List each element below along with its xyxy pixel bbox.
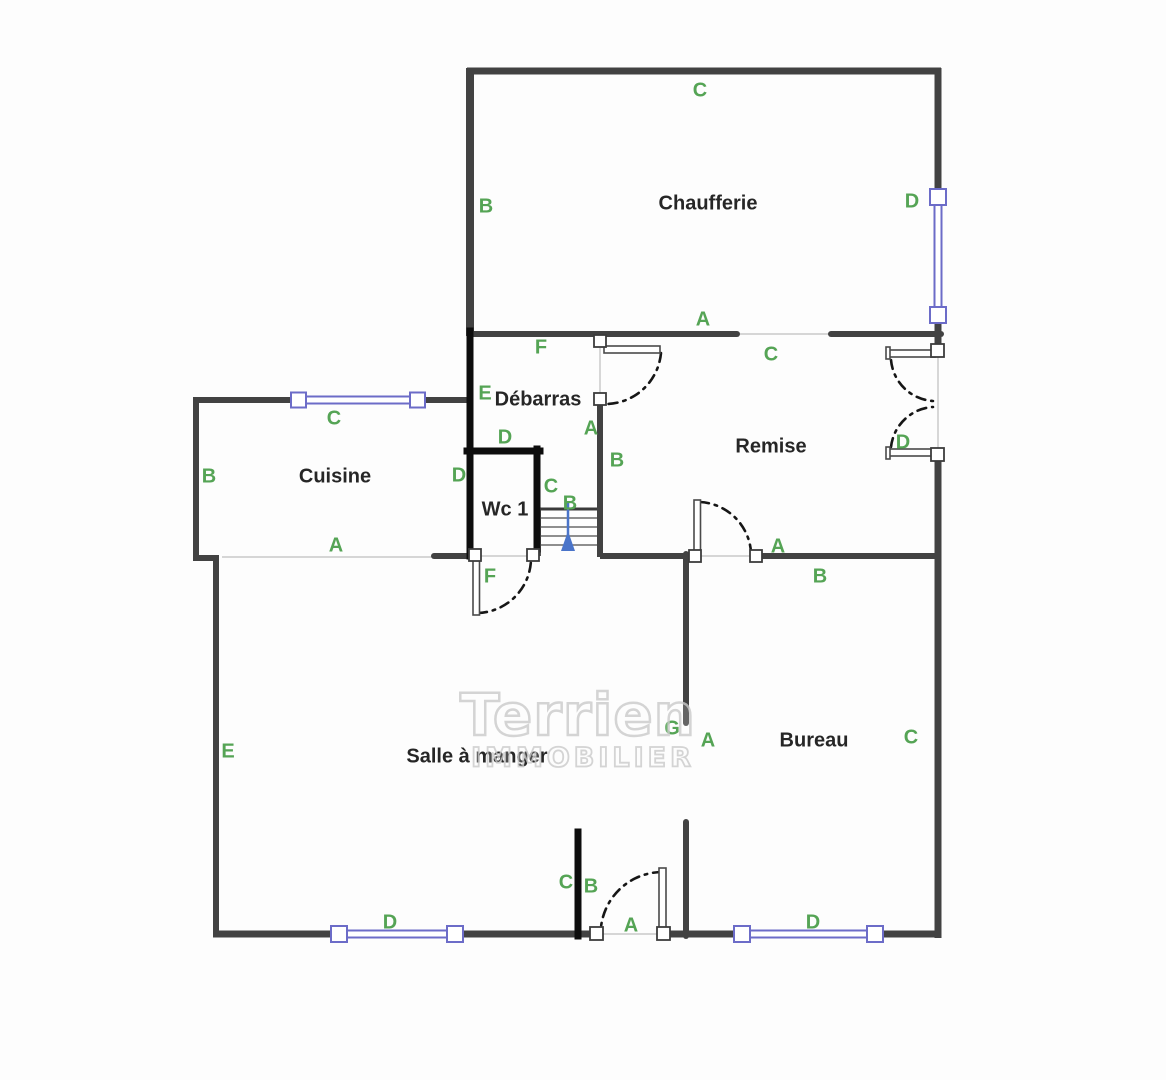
door-jamb xyxy=(469,549,481,561)
wall-label: B xyxy=(584,875,598,897)
wall-label: C xyxy=(544,475,558,497)
window-cap xyxy=(734,926,750,942)
room-name: Chaufferie xyxy=(659,192,758,214)
floor-plan: CBDAFCECADDBDBCBAAFBGACECBDDA Chaufferie… xyxy=(0,0,1166,1080)
room-name: Bureau xyxy=(780,729,849,751)
wall-label: B xyxy=(479,195,493,217)
wall-label: B xyxy=(813,565,827,587)
door-jamb xyxy=(590,927,603,940)
door-jamb xyxy=(750,550,762,562)
wall-label: D xyxy=(383,911,397,933)
wall-label: F xyxy=(484,565,496,587)
wall-label: A xyxy=(701,729,715,751)
window-cap xyxy=(930,307,946,323)
door-leaf-cap xyxy=(886,347,890,359)
wall-label: A xyxy=(771,535,785,557)
room-name: Cuisine xyxy=(299,465,371,487)
black-walls xyxy=(467,331,578,936)
wall-label: C xyxy=(904,726,918,748)
wall-label: C xyxy=(693,79,707,101)
door-jamb xyxy=(594,335,606,347)
door-swing-arc xyxy=(891,360,933,401)
wall-label: C xyxy=(327,407,341,429)
window xyxy=(935,203,942,309)
window-cap xyxy=(291,393,306,408)
room-labels: ChaufferieDébarrasRemiseCuisineWc 1Salle… xyxy=(299,192,849,767)
door-jamb xyxy=(931,448,944,461)
stairs-direction-arrow-icon xyxy=(561,531,575,551)
room-name: Remise xyxy=(735,435,806,457)
wall-label: B xyxy=(202,465,216,487)
wall-label: D xyxy=(896,431,910,453)
wall-label: C xyxy=(559,871,573,893)
door-leaf-cap xyxy=(886,447,890,459)
window-cap xyxy=(930,189,946,205)
door-jamb xyxy=(657,927,670,940)
wall-label: D xyxy=(905,190,919,212)
wall-label: D xyxy=(498,426,512,448)
door-swing-arc xyxy=(606,353,661,404)
door-leaf xyxy=(604,346,660,353)
door-leaf xyxy=(889,350,935,357)
window-cap xyxy=(410,393,425,408)
door-leaf xyxy=(473,558,480,615)
wall-label: G xyxy=(664,717,680,739)
wall-label: F xyxy=(535,336,547,358)
window xyxy=(302,397,414,404)
door-jamb xyxy=(527,549,539,561)
window-cap xyxy=(867,926,883,942)
wall-label: B xyxy=(610,449,624,471)
wall-label: A xyxy=(696,308,710,330)
wall-label: C xyxy=(764,343,778,365)
window-cap xyxy=(331,926,347,942)
door-jamb xyxy=(594,393,606,405)
floor-plan-page: CBDAFCECADDBDBCBAAFBGACECBDDA Chaufferie… xyxy=(0,0,1166,1080)
door-jamb xyxy=(689,550,701,562)
wall-label: A xyxy=(584,417,598,439)
room-name: Débarras xyxy=(495,388,582,410)
wall-label: A xyxy=(329,534,343,556)
room-name: Salle à manger xyxy=(406,745,547,767)
wall-label: E xyxy=(478,382,491,404)
door-jamb xyxy=(931,344,944,357)
wall-label: B xyxy=(563,492,577,514)
door-leaf xyxy=(659,868,666,929)
window-cap xyxy=(447,926,463,942)
door-swing-arc xyxy=(700,502,751,552)
doors xyxy=(469,335,944,940)
wall-label: D xyxy=(452,464,466,486)
wall-label: D xyxy=(806,911,820,933)
windows xyxy=(291,189,946,942)
door-leaf xyxy=(694,500,701,555)
wall-label: A xyxy=(624,914,638,936)
room-name: Wc 1 xyxy=(482,498,529,520)
wall-label: E xyxy=(221,740,234,762)
